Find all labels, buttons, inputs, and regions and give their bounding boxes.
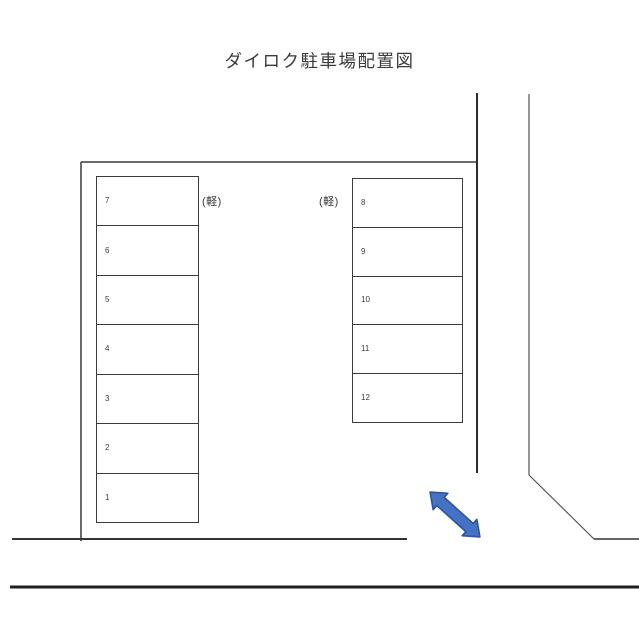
stall-number: 9 <box>361 248 365 256</box>
parking-stall: 9 <box>353 228 462 277</box>
corner-diagonal-line <box>529 475 594 539</box>
parking-stall: 7 <box>97 177 198 226</box>
stall-number: 2 <box>105 444 109 452</box>
parking-layout-diagram: ダイロク駐車場配置図 7 6 5 <box>0 0 639 640</box>
two-way-arrow-shape <box>423 484 488 545</box>
stall-number: 5 <box>105 296 109 304</box>
stall-number: 12 <box>361 394 370 402</box>
stall-number: 10 <box>361 296 370 304</box>
stall-number: 1 <box>105 494 109 502</box>
stall-number: 8 <box>361 199 365 207</box>
page-title: ダイロク駐車場配置図 <box>0 48 639 73</box>
parking-stall: 2 <box>97 424 198 473</box>
two-way-arrow-icon <box>423 484 488 545</box>
parking-stall: 8 <box>353 179 462 228</box>
parking-stall: 5 <box>97 276 198 325</box>
stall-column-right: 8 9 10 11 12 <box>352 178 463 423</box>
stall-column-left: 7 6 5 4 3 2 1 <box>96 176 199 523</box>
kei-car-label-left: (軽) <box>202 193 222 209</box>
parking-stall: 11 <box>353 325 462 374</box>
two-way-arrow-outline <box>423 484 488 545</box>
kei-car-label-right: (軽) <box>319 193 339 209</box>
stall-number: 7 <box>105 197 109 205</box>
parking-stall: 1 <box>97 474 198 522</box>
parking-stall: 6 <box>97 226 198 275</box>
stall-number: 3 <box>105 395 109 403</box>
stall-number: 4 <box>105 345 109 353</box>
stall-number: 11 <box>361 345 369 353</box>
parking-stall: 4 <box>97 325 198 374</box>
parking-stall: 3 <box>97 375 198 424</box>
parking-stall: 12 <box>353 374 462 422</box>
parking-stall: 10 <box>353 277 462 326</box>
stall-number: 6 <box>105 247 109 255</box>
